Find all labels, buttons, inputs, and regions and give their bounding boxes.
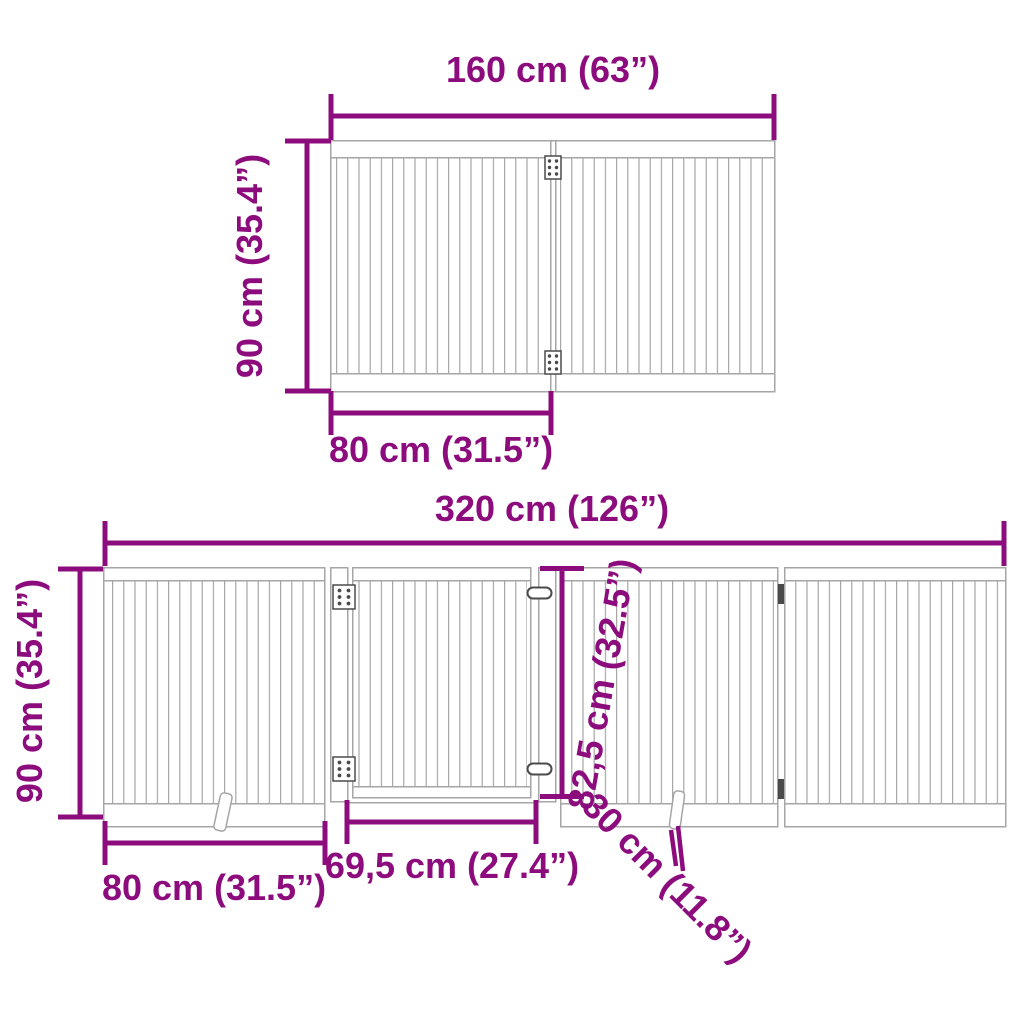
hinge-icon	[545, 351, 561, 374]
top-panel-width-label: 80 cm (31.5”)	[329, 432, 553, 468]
bottom-overall-height-label: 90 cm (35.4”)	[12, 579, 48, 803]
hinge-icon	[545, 156, 561, 179]
top-overall-height-label: 90 cm (35.4”)	[232, 154, 268, 378]
hinge-icon	[778, 584, 784, 604]
latch-pin-icon	[528, 588, 552, 599]
door-width-label: 69,5 cm (27.4”)	[325, 848, 579, 884]
latch-pin-icon	[528, 764, 552, 775]
hinge-icon	[778, 779, 784, 799]
door-hinge-icon	[333, 585, 355, 609]
bottom-overall-width-label: 320 cm (126”)	[435, 491, 669, 527]
top-overall-width-label: 160 cm (63”)	[446, 52, 660, 88]
bottom-gate-drawing	[104, 568, 1006, 827]
bottom-panel-width-label: 80 cm (31.5”)	[102, 870, 326, 906]
door-hinge-icon	[333, 757, 355, 781]
dimension-diagram: 160 cm (63”) 90 cm (35.4”) 80 cm (31.5”)…	[0, 0, 1024, 1024]
